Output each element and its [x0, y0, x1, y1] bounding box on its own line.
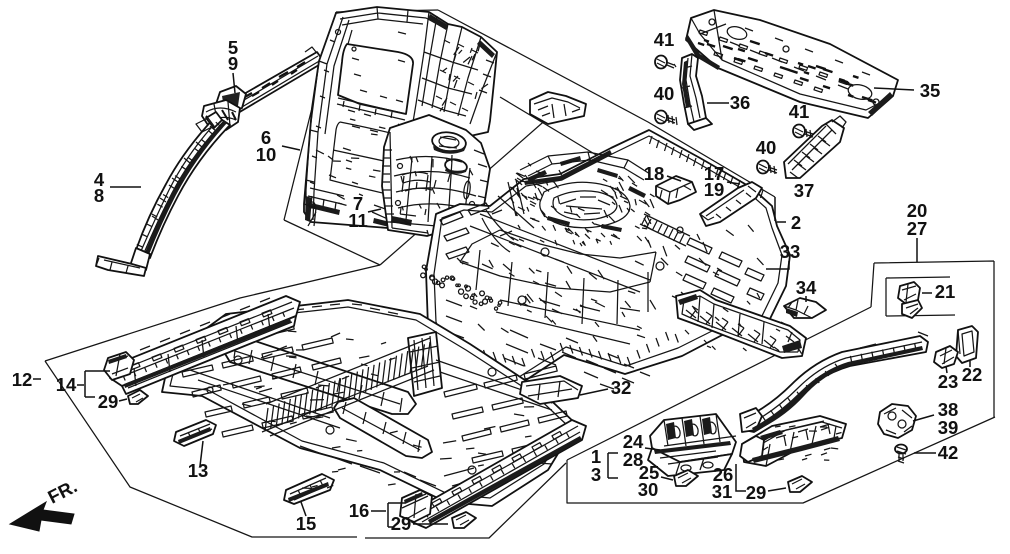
svg-text:41: 41: [789, 101, 810, 122]
svg-text:3: 3: [591, 464, 601, 485]
svg-text:34: 34: [796, 277, 817, 298]
svg-text:40: 40: [756, 137, 777, 158]
svg-text:31: 31: [712, 481, 733, 502]
svg-text:39: 39: [938, 417, 959, 438]
svg-text:37: 37: [794, 180, 815, 201]
svg-text:33: 33: [780, 241, 801, 262]
svg-text:16: 16: [349, 500, 370, 521]
svg-text:40: 40: [654, 83, 675, 104]
svg-text:29: 29: [746, 482, 767, 503]
svg-text:29: 29: [98, 391, 119, 412]
svg-text:42: 42: [938, 442, 959, 463]
svg-text:13: 13: [188, 460, 209, 481]
svg-text:30: 30: [638, 479, 659, 500]
svg-text:21: 21: [935, 281, 956, 302]
svg-text:23: 23: [938, 371, 959, 392]
svg-text:10: 10: [256, 144, 277, 165]
svg-text:14: 14: [56, 374, 77, 395]
svg-text:18: 18: [644, 163, 665, 184]
svg-text:36: 36: [730, 92, 751, 113]
svg-text:22: 22: [962, 364, 983, 385]
svg-text:8: 8: [94, 185, 104, 206]
svg-text:41: 41: [654, 29, 675, 50]
svg-text:35: 35: [920, 80, 941, 101]
svg-text:2: 2: [791, 212, 801, 233]
svg-text:11: 11: [348, 210, 368, 231]
svg-text:9: 9: [228, 53, 238, 74]
svg-text:12: 12: [12, 369, 33, 390]
svg-text:29: 29: [391, 513, 412, 534]
svg-text:27: 27: [907, 218, 928, 239]
svg-text:15: 15: [296, 513, 317, 534]
svg-text:19: 19: [704, 179, 725, 200]
svg-text:32: 32: [611, 377, 632, 398]
